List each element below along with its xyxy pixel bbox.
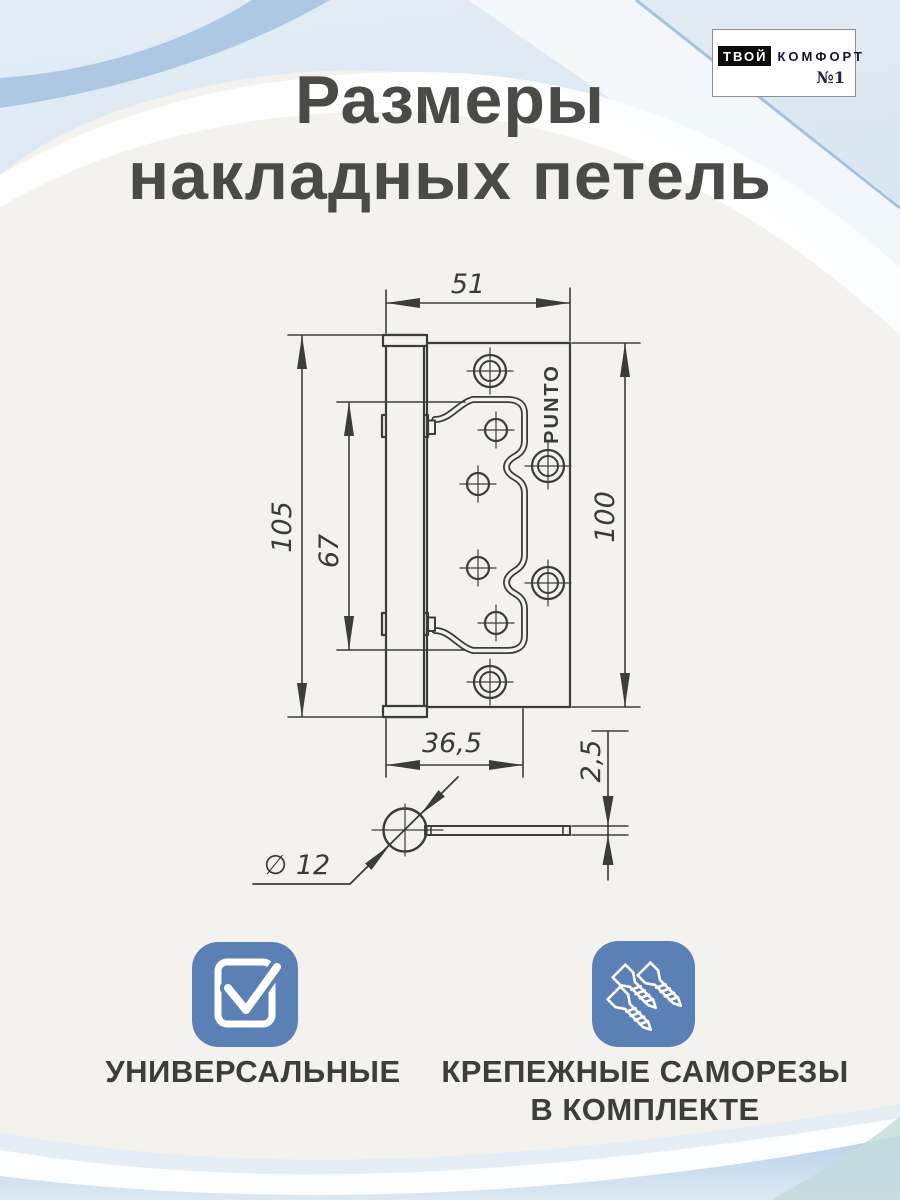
dim-leaf-width: 36,5 xyxy=(422,728,482,759)
dim-width-total: 51 xyxy=(451,269,485,300)
feature-screws-icon-tile xyxy=(592,941,695,1047)
feature-universal-label: УНИВЕРСАЛЬНЫЕ xyxy=(43,1053,463,1091)
feature-universal-label-text: УНИВЕРСАЛЬНЫЕ xyxy=(43,1053,463,1091)
feature-universal-icon-tile xyxy=(192,942,298,1047)
infographic-page: { "title": { "line1": "Размеры", "line2"… xyxy=(0,0,900,1200)
dim-leaf-height: 100 xyxy=(590,491,621,543)
dimension-labels: 51 105 67 100 36,5 2,5 ∅ 12 xyxy=(264,269,621,881)
hinge-small-holes xyxy=(467,419,507,634)
dim-height-total: 105 xyxy=(267,501,298,553)
dim-thickness: 2,5 xyxy=(576,740,607,783)
hinge-barrel xyxy=(383,335,427,717)
side-view-leaf xyxy=(425,826,570,835)
feature-screws-label-line2: В КОМПЛЕКТЕ xyxy=(435,1091,855,1129)
feature-screws-label-line1: КРЕПЕЖНЫЕ САМОРЕЗЫ xyxy=(435,1053,855,1091)
dim-inner-height: 67 xyxy=(314,534,345,568)
hinge-technical-drawing: 51 105 67 100 36,5 2,5 ∅ 12 PUNTO xyxy=(0,0,900,1200)
side-view-centerlines xyxy=(372,804,443,856)
dimension-arrows xyxy=(297,298,630,870)
dim-barrel-diameter: ∅ 12 xyxy=(264,850,330,881)
feature-screws-label: КРЕПЕЖНЫЕ САМОРЕЗЫ В КОМПЛЕКТЕ xyxy=(435,1053,855,1129)
hinge-brand-stamp: PUNTO xyxy=(541,364,563,444)
dimension-lines xyxy=(288,288,640,880)
hinge-inner-leaf-contour xyxy=(435,400,525,651)
